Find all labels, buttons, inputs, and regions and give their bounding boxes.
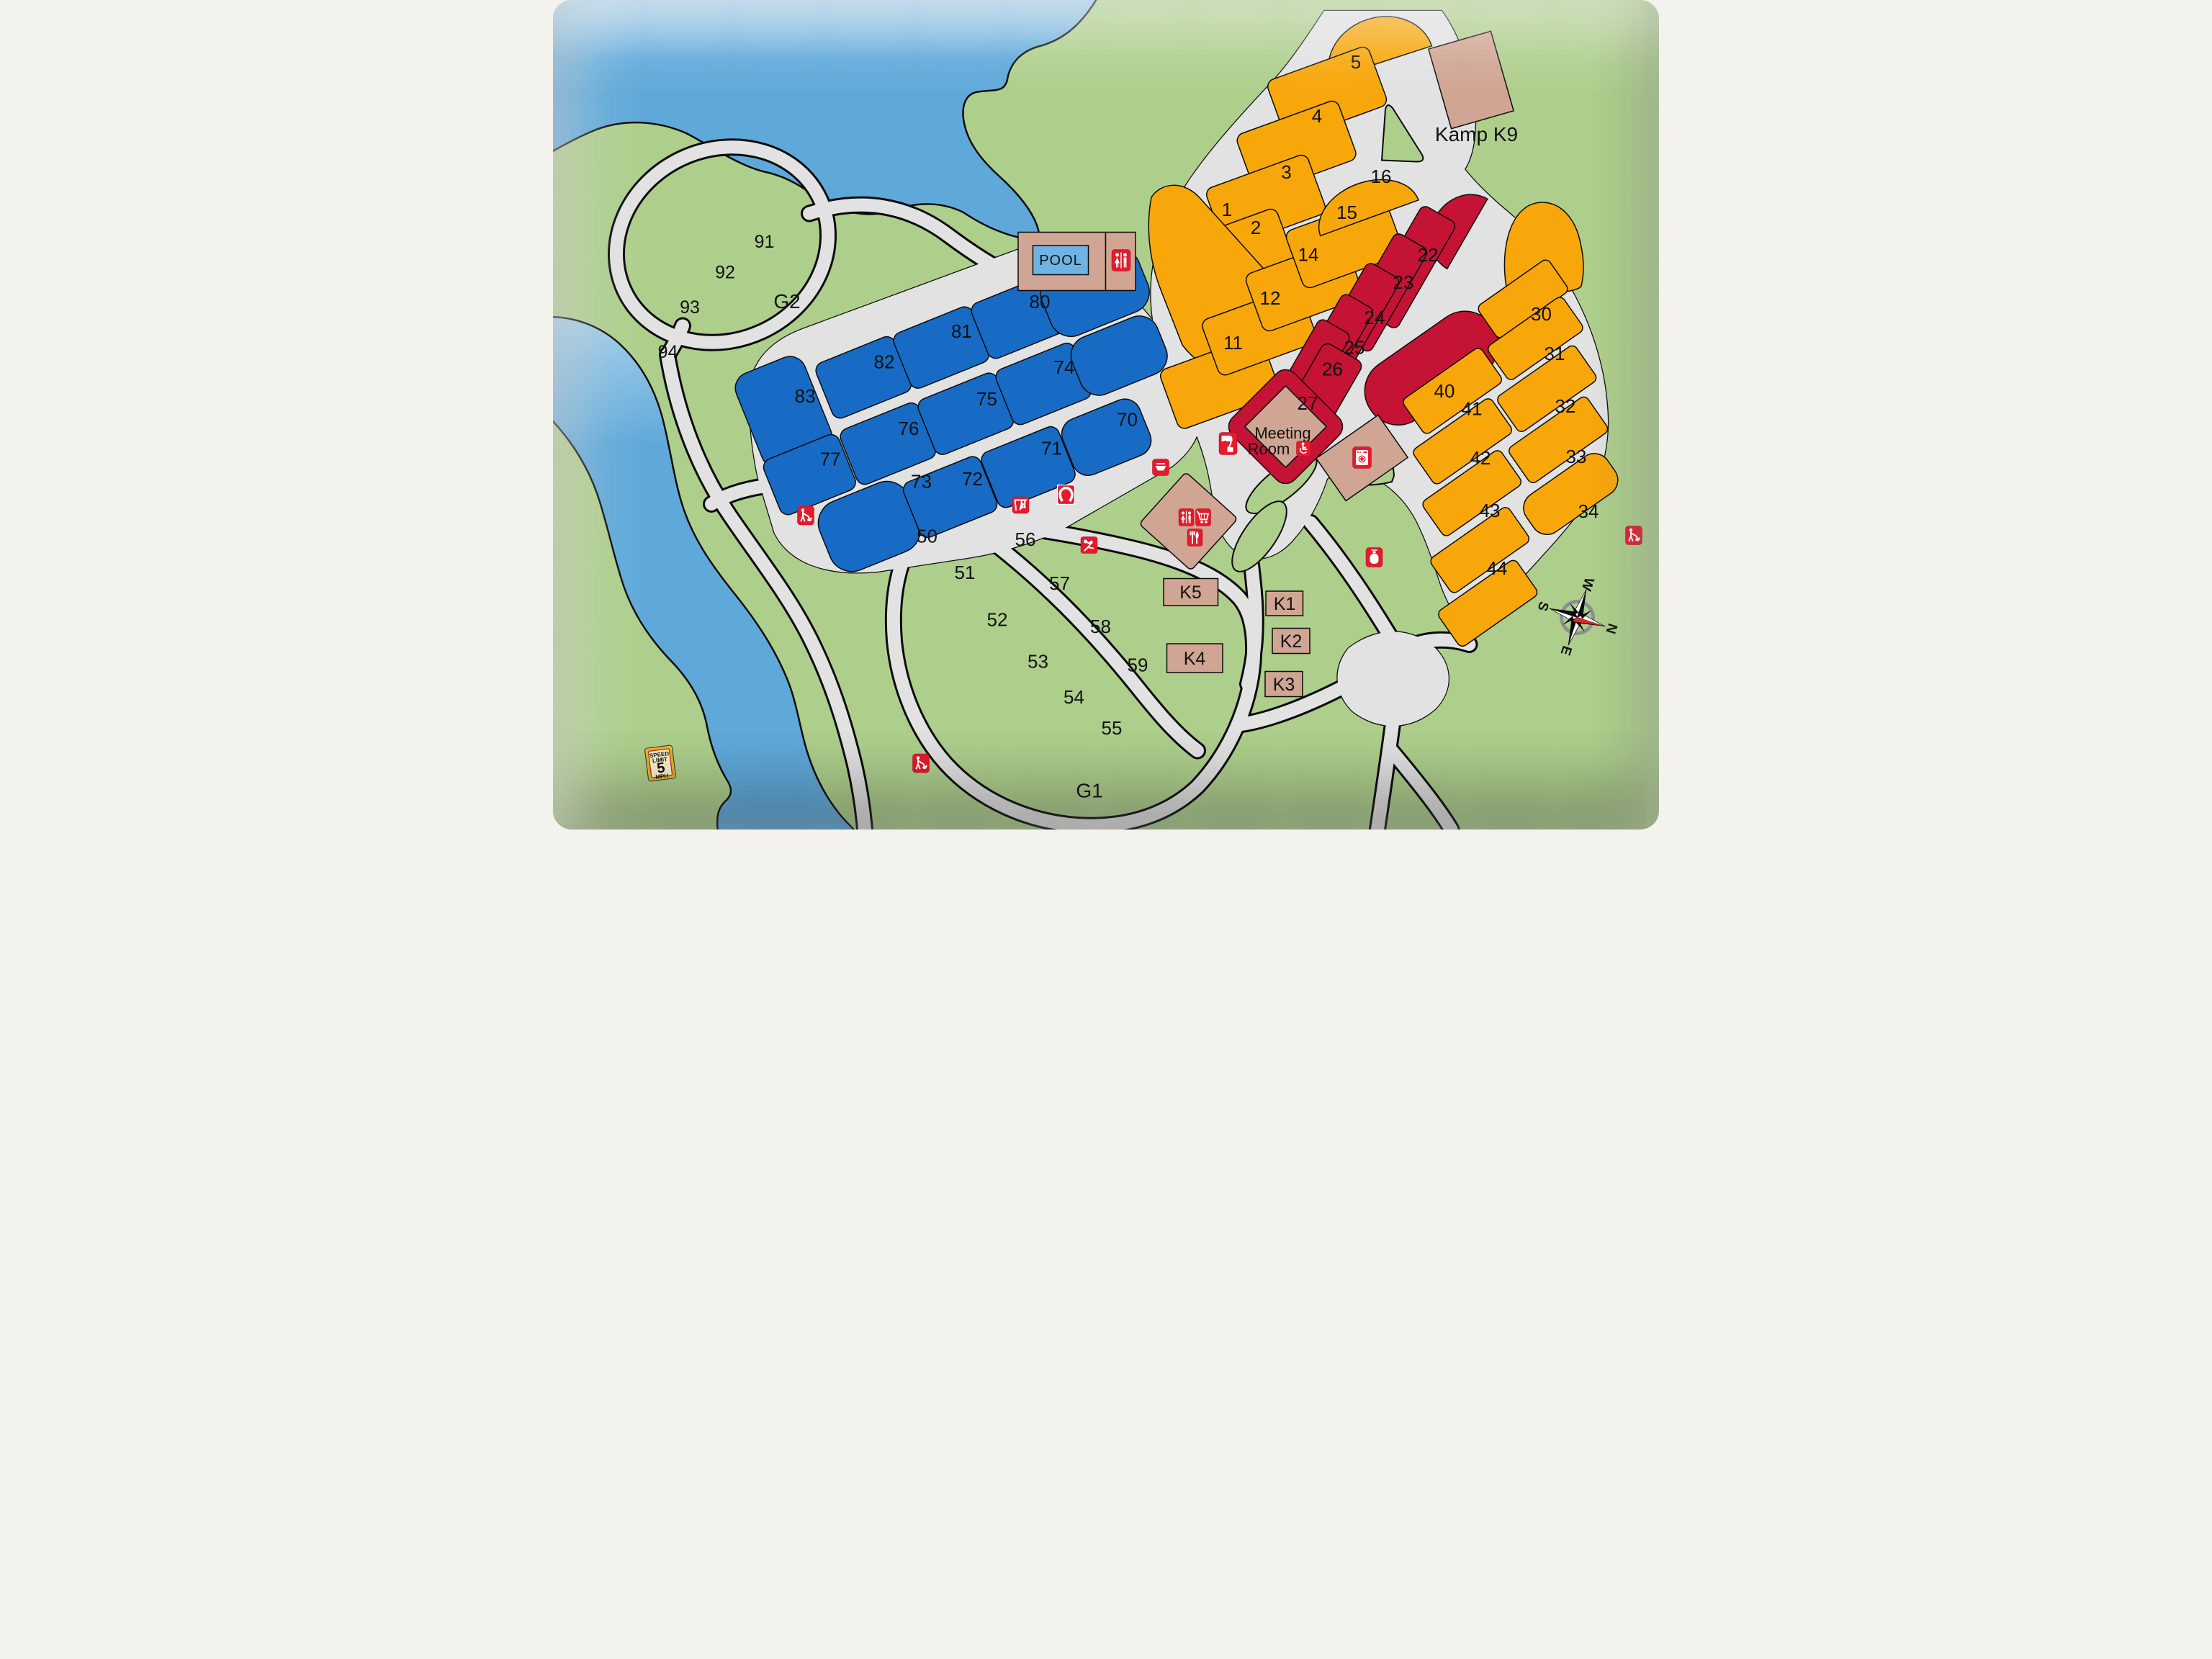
site-label-71: 71 [1041, 438, 1062, 459]
speed-limit-sign: SPEED LIMIT 5 MPH [644, 745, 675, 781]
site-label-74: 74 [1054, 356, 1075, 378]
laundry-icon [1353, 447, 1372, 469]
site-label-52: 52 [987, 609, 1008, 631]
site-label-91: 91 [755, 232, 775, 252]
site-label-70: 70 [1117, 409, 1138, 431]
swing-icon [1012, 497, 1029, 513]
area-label-g1: G1 [1076, 780, 1102, 802]
cabin-k2-label: K2 [1280, 631, 1303, 652]
site-label-5: 5 [1351, 51, 1361, 73]
site-label-23: 23 [1393, 271, 1414, 293]
shopping-cart-icon [1196, 509, 1211, 526]
propane-icon [1366, 548, 1382, 567]
site-label-27: 27 [1298, 392, 1318, 414]
meeting-room-label-2: Room [1248, 440, 1290, 458]
site-label-34: 34 [1578, 500, 1599, 522]
site-label-93: 93 [680, 297, 700, 318]
horseshoe-icon [1057, 485, 1075, 505]
site-label-12: 12 [1260, 287, 1281, 309]
site-label-83: 83 [795, 385, 816, 407]
site-label-2: 2 [1251, 217, 1261, 238]
kamp-k9-label: Kamp K9 [1435, 123, 1518, 145]
site-label-53: 53 [1028, 651, 1048, 673]
site-label-4: 4 [1312, 105, 1322, 127]
dog-walk-icon [1626, 526, 1642, 545]
handicap-icon [1297, 441, 1311, 457]
cabin-k3-label: K3 [1273, 675, 1295, 695]
site-label-26: 26 [1322, 359, 1343, 380]
site-label-72: 72 [962, 468, 983, 490]
site-label-15: 15 [1336, 202, 1357, 223]
site-label-57: 57 [1049, 572, 1070, 594]
dump-station-icon [1219, 433, 1237, 455]
site-label-31: 31 [1545, 343, 1565, 364]
site-label-3: 3 [1281, 161, 1291, 183]
site-label-75: 75 [976, 388, 997, 410]
site-label-11: 11 [1223, 332, 1243, 354]
meeting-room-label-1: Meeting [1254, 424, 1310, 442]
site-label-81: 81 [951, 320, 972, 342]
pool-label: POOL [1039, 253, 1082, 269]
restroom-icon [1179, 509, 1194, 526]
site-label-41: 41 [1462, 398, 1483, 420]
site-label-42: 42 [1470, 447, 1491, 469]
dog-walk-icon [798, 506, 814, 525]
restroom-icon [1112, 250, 1130, 271]
site-label-40: 40 [1434, 380, 1455, 402]
site-label-51: 51 [955, 562, 976, 583]
site-label-16: 16 [1371, 166, 1392, 187]
site-label-43: 43 [1480, 500, 1501, 521]
site-label-32: 32 [1555, 395, 1576, 417]
boat-icon [1153, 459, 1169, 476]
site-label-54: 54 [1064, 686, 1084, 708]
site-label-55: 55 [1102, 717, 1123, 739]
site-label-94: 94 [658, 342, 678, 362]
volleyball-icon [1081, 537, 1097, 554]
cabin-k1-label: K1 [1274, 594, 1296, 614]
site-label-59: 59 [1128, 655, 1148, 676]
site-label-50: 50 [917, 526, 938, 547]
site-label-14: 14 [1298, 244, 1319, 266]
cabin-k4-label: K4 [1184, 649, 1206, 669]
site-label-24: 24 [1364, 307, 1385, 328]
area-label-g2: G2 [773, 290, 800, 313]
site-label-92: 92 [715, 263, 735, 283]
site-label-25: 25 [1344, 337, 1365, 359]
dog-walk-icon [913, 754, 930, 773]
site-label-56: 56 [1015, 529, 1036, 550]
site-label-30: 30 [1531, 303, 1552, 325]
campground-map: POOL Kamp K9 Meeting Room K5 K4 K1 K2 K3… [553, 0, 1659, 829]
site-label-58: 58 [1090, 616, 1111, 637]
food-icon [1187, 529, 1202, 547]
site-label-22: 22 [1418, 244, 1439, 266]
site-label-76: 76 [899, 418, 920, 439]
cabin-k5-label: K5 [1179, 583, 1202, 603]
site-label-77: 77 [820, 449, 841, 470]
site-label-33: 33 [1566, 446, 1587, 467]
site-label-73: 73 [911, 471, 932, 493]
site-label-82: 82 [874, 351, 895, 373]
site-label-1: 1 [1222, 199, 1232, 220]
site-label-80: 80 [1030, 291, 1051, 313]
site-label-44: 44 [1487, 557, 1508, 579]
